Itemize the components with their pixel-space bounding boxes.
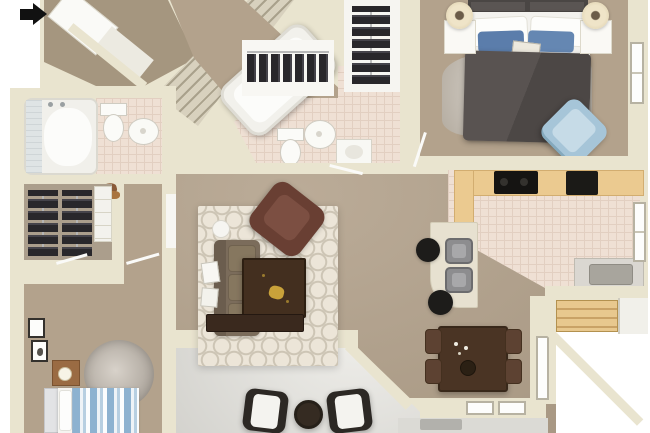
twin-bed-pillow (59, 390, 72, 431)
plate (458, 352, 461, 355)
magazines (200, 287, 219, 307)
tv-stand (206, 314, 304, 332)
dining-table (438, 326, 508, 392)
wall-art (28, 318, 45, 338)
closet-b-hanging-clothes (352, 6, 390, 84)
floor-plan (0, 0, 650, 433)
bar-seat (445, 238, 473, 264)
vanity-basin (345, 145, 363, 159)
nightstand (52, 360, 80, 386)
closet-shelf-unit (94, 186, 112, 242)
wall (10, 260, 124, 284)
door-mat (420, 419, 462, 430)
window (630, 42, 644, 104)
chair-cushion (261, 192, 313, 244)
chair-cushion (250, 393, 281, 429)
shower-fixture (60, 102, 65, 107)
bar-seat (445, 267, 473, 293)
shower-fixture (48, 102, 53, 107)
magazines (201, 261, 221, 284)
chair-cushion (334, 393, 365, 429)
pedestal-sink (128, 118, 159, 145)
plate (464, 346, 468, 350)
page-margin (0, 0, 10, 433)
table-decor (262, 274, 265, 277)
plate (454, 342, 458, 346)
bar-seat-inner (452, 273, 466, 287)
headboard-panel (471, 2, 525, 11)
exterior-landing (618, 298, 648, 334)
burner (520, 178, 528, 186)
bar-seat-inner (452, 244, 466, 258)
dining-chair (425, 359, 442, 384)
centerpiece-bowl (460, 360, 476, 376)
window (536, 336, 549, 400)
bathtub-basin (44, 108, 92, 166)
toilet (280, 139, 301, 166)
coffee-table (242, 258, 306, 318)
bar-stool (428, 290, 453, 315)
bar-stool (416, 238, 440, 262)
dining-chair (505, 359, 522, 384)
black-appliance (566, 171, 598, 195)
art-mark (37, 348, 43, 356)
closet-a-rod (247, 51, 329, 53)
patio-table (294, 400, 323, 429)
pedestal-sink (304, 120, 336, 149)
window-mullion (635, 231, 644, 233)
arrow-body (20, 9, 33, 20)
burner (500, 178, 508, 186)
window (633, 202, 646, 262)
window (466, 401, 494, 415)
window-mullion (632, 72, 642, 74)
shower-tile-wall (26, 100, 42, 173)
wall (420, 156, 648, 170)
corridor-carpet (124, 184, 162, 284)
open-door-panel (166, 194, 176, 248)
sink-basin (589, 264, 633, 285)
bathroom-vanity (336, 139, 372, 165)
bathtub (24, 98, 98, 175)
closet-a-hanging-clothes (247, 54, 329, 82)
wall (400, 0, 420, 172)
table-decor (286, 300, 289, 303)
patio-chair (242, 388, 290, 433)
exterior-wood-steps (556, 300, 618, 332)
sink-drain (316, 131, 322, 137)
closet-hanging-clothes (28, 190, 58, 256)
table-lamp (582, 2, 609, 29)
closet-hanging-clothes (62, 190, 92, 256)
table-lamp (446, 2, 473, 29)
window (498, 401, 526, 415)
wall-art (31, 340, 48, 362)
table-decor-gold (268, 284, 286, 300)
cooktop (494, 171, 538, 194)
sink-drain (140, 128, 146, 134)
chair-cushion (550, 107, 598, 155)
table-lamp (58, 367, 72, 381)
striped-blanket (72, 388, 139, 433)
entry-arrow-icon (20, 3, 48, 26)
kitchen-counter (454, 170, 644, 196)
wall (162, 86, 176, 433)
headboard-panel (530, 2, 584, 11)
dining-chair (425, 329, 442, 354)
dining-chair (505, 329, 522, 354)
arrow-head (33, 3, 47, 25)
end-table (212, 220, 230, 238)
toilet (103, 114, 124, 142)
kitchen-sink-counter (574, 258, 644, 288)
twin-bed-headboard (44, 388, 59, 433)
patio-chair (326, 388, 374, 433)
